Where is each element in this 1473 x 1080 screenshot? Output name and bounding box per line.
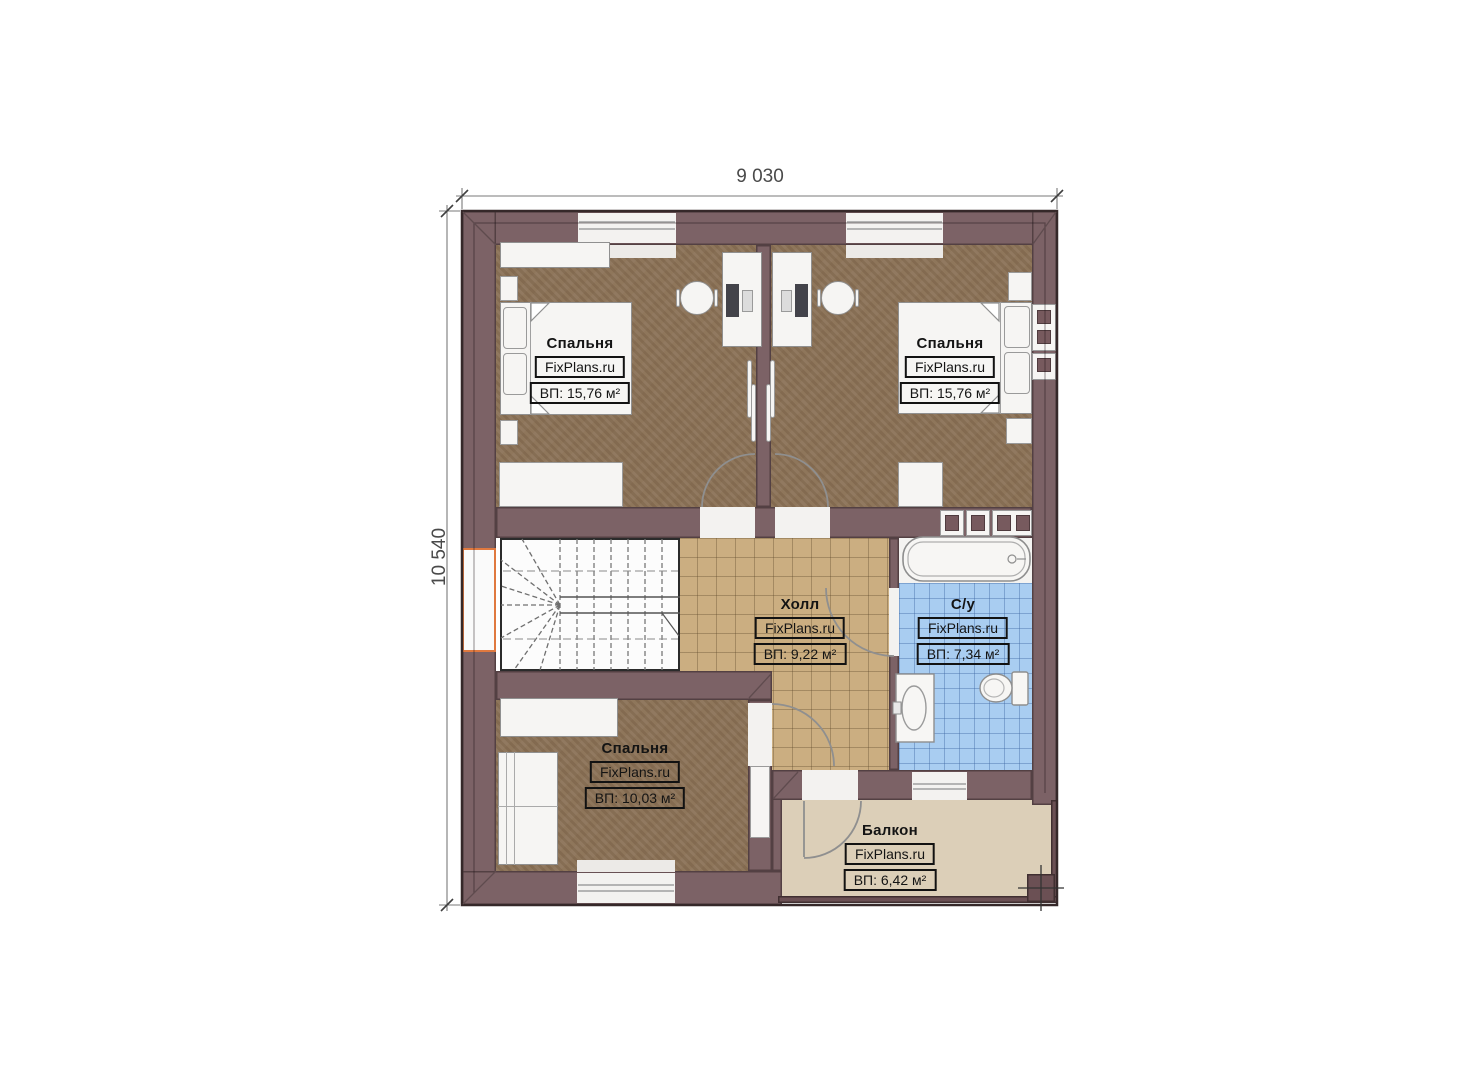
room-name: Спальня: [547, 335, 614, 352]
room-label-bedroom-top-right: Спальня FixPlans.ru ВП: 15,76 м²: [900, 335, 1000, 404]
door-opening-bathroom: [889, 588, 899, 656]
window-bottom: [577, 873, 675, 903]
room-area: ВП: 6,42 м²: [844, 869, 937, 891]
nightstand: [1008, 272, 1032, 301]
window-sill-bottom: [577, 860, 675, 872]
pillow: [1004, 306, 1030, 348]
watermark: FixPlans.ru: [905, 356, 995, 378]
window-stairs: [462, 548, 496, 652]
door-opening-balcony: [802, 770, 858, 800]
room-label-hall: Холл FixPlans.ru ВП: 9,22 м²: [754, 596, 847, 665]
room-name: Спальня: [917, 335, 984, 352]
window-top-left: [578, 213, 676, 243]
floor-plan-canvas: 9 030 10 540 Спальня FixPlans.ru ВП: 15,…: [0, 0, 1473, 1080]
room-name: Балкон: [862, 822, 918, 839]
door-leaf-bedroom-bottom: [750, 766, 770, 838]
bath-shelf-square: [997, 515, 1011, 531]
cabinet-square: [1037, 310, 1051, 324]
chair-armrest: [855, 289, 859, 307]
wardrobe-bedroom-bottom: [500, 698, 618, 737]
cabinet-square: [1037, 330, 1051, 344]
radiator: [766, 384, 771, 442]
room-label-bedroom-top-left: Спальня FixPlans.ru ВП: 15,76 м²: [530, 335, 630, 404]
balcony-rail-bottom: [778, 896, 1058, 903]
dimension-width-label: 9 030: [710, 166, 810, 188]
nightstand: [1006, 418, 1032, 444]
room-name: Холл: [781, 596, 820, 613]
monitor: [795, 284, 808, 317]
pillow: [1004, 352, 1030, 394]
bed-line: [506, 752, 507, 865]
room-name: С/у: [951, 596, 975, 613]
room-area: ВП: 15,76 м²: [900, 382, 1000, 404]
wall-stair-bottom: [496, 671, 772, 700]
window-sill-top-right: [846, 245, 943, 258]
keyboard: [781, 290, 792, 312]
keyboard: [742, 290, 753, 312]
chair-left: [680, 281, 714, 315]
dimension-height-label: 10 540: [429, 512, 451, 602]
watermark: FixPlans.ru: [535, 356, 625, 378]
door-opening-bedroom-bottom: [748, 703, 772, 766]
chair-armrest: [817, 289, 821, 307]
wall-right: [1032, 211, 1057, 805]
watermark: FixPlans.ru: [590, 761, 680, 783]
room-name: Спальня: [602, 740, 669, 757]
room-area: ВП: 10,03 м²: [585, 787, 685, 809]
nightstand: [500, 276, 518, 301]
bath-shelf-square: [945, 515, 959, 531]
dresser-bedroom-top-left: [499, 462, 623, 507]
monitor: [726, 284, 739, 317]
pillow: [503, 307, 527, 349]
chair-armrest: [676, 289, 680, 307]
room-area: ВП: 9,22 м²: [754, 643, 847, 665]
wardrobe-bedroom-top-left: [500, 242, 610, 268]
chair-right: [821, 281, 855, 315]
door-opening-bedroom-top-left: [700, 507, 755, 538]
wall-top: [462, 211, 1057, 245]
room-label-bathroom: С/у FixPlans.ru ВП: 7,34 м²: [917, 596, 1010, 665]
door-opening-bedroom-top-right: [775, 507, 830, 538]
stair-area: [500, 538, 680, 671]
watermark: FixPlans.ru: [755, 617, 845, 639]
radiator: [751, 384, 756, 442]
watermark: FixPlans.ru: [845, 843, 935, 865]
bed-line: [498, 806, 558, 807]
chair-armrest: [714, 289, 718, 307]
floor-bath-tub-zone: [899, 538, 1032, 583]
room-area: ВП: 7,34 м²: [917, 643, 1010, 665]
window-balcony: [912, 772, 967, 800]
room-label-balcony: Балкон FixPlans.ru ВП: 6,42 м²: [844, 822, 937, 891]
bed-bottom: [498, 752, 558, 865]
bath-shelf-square: [1016, 515, 1030, 531]
bed-line: [514, 752, 515, 865]
cabinet-square: [1037, 358, 1051, 372]
watermark: FixPlans.ru: [918, 617, 1008, 639]
room-area: ВП: 15,76 м²: [530, 382, 630, 404]
bath-shelf-square: [971, 515, 985, 531]
dresser-bedroom-top-right: [898, 462, 943, 507]
pillow: [503, 353, 527, 395]
room-label-bedroom-bottom: Спальня FixPlans.ru ВП: 10,03 м²: [585, 740, 685, 809]
balcony-column: [1027, 874, 1055, 902]
nightstand: [500, 420, 518, 445]
window-top-right: [846, 213, 943, 243]
